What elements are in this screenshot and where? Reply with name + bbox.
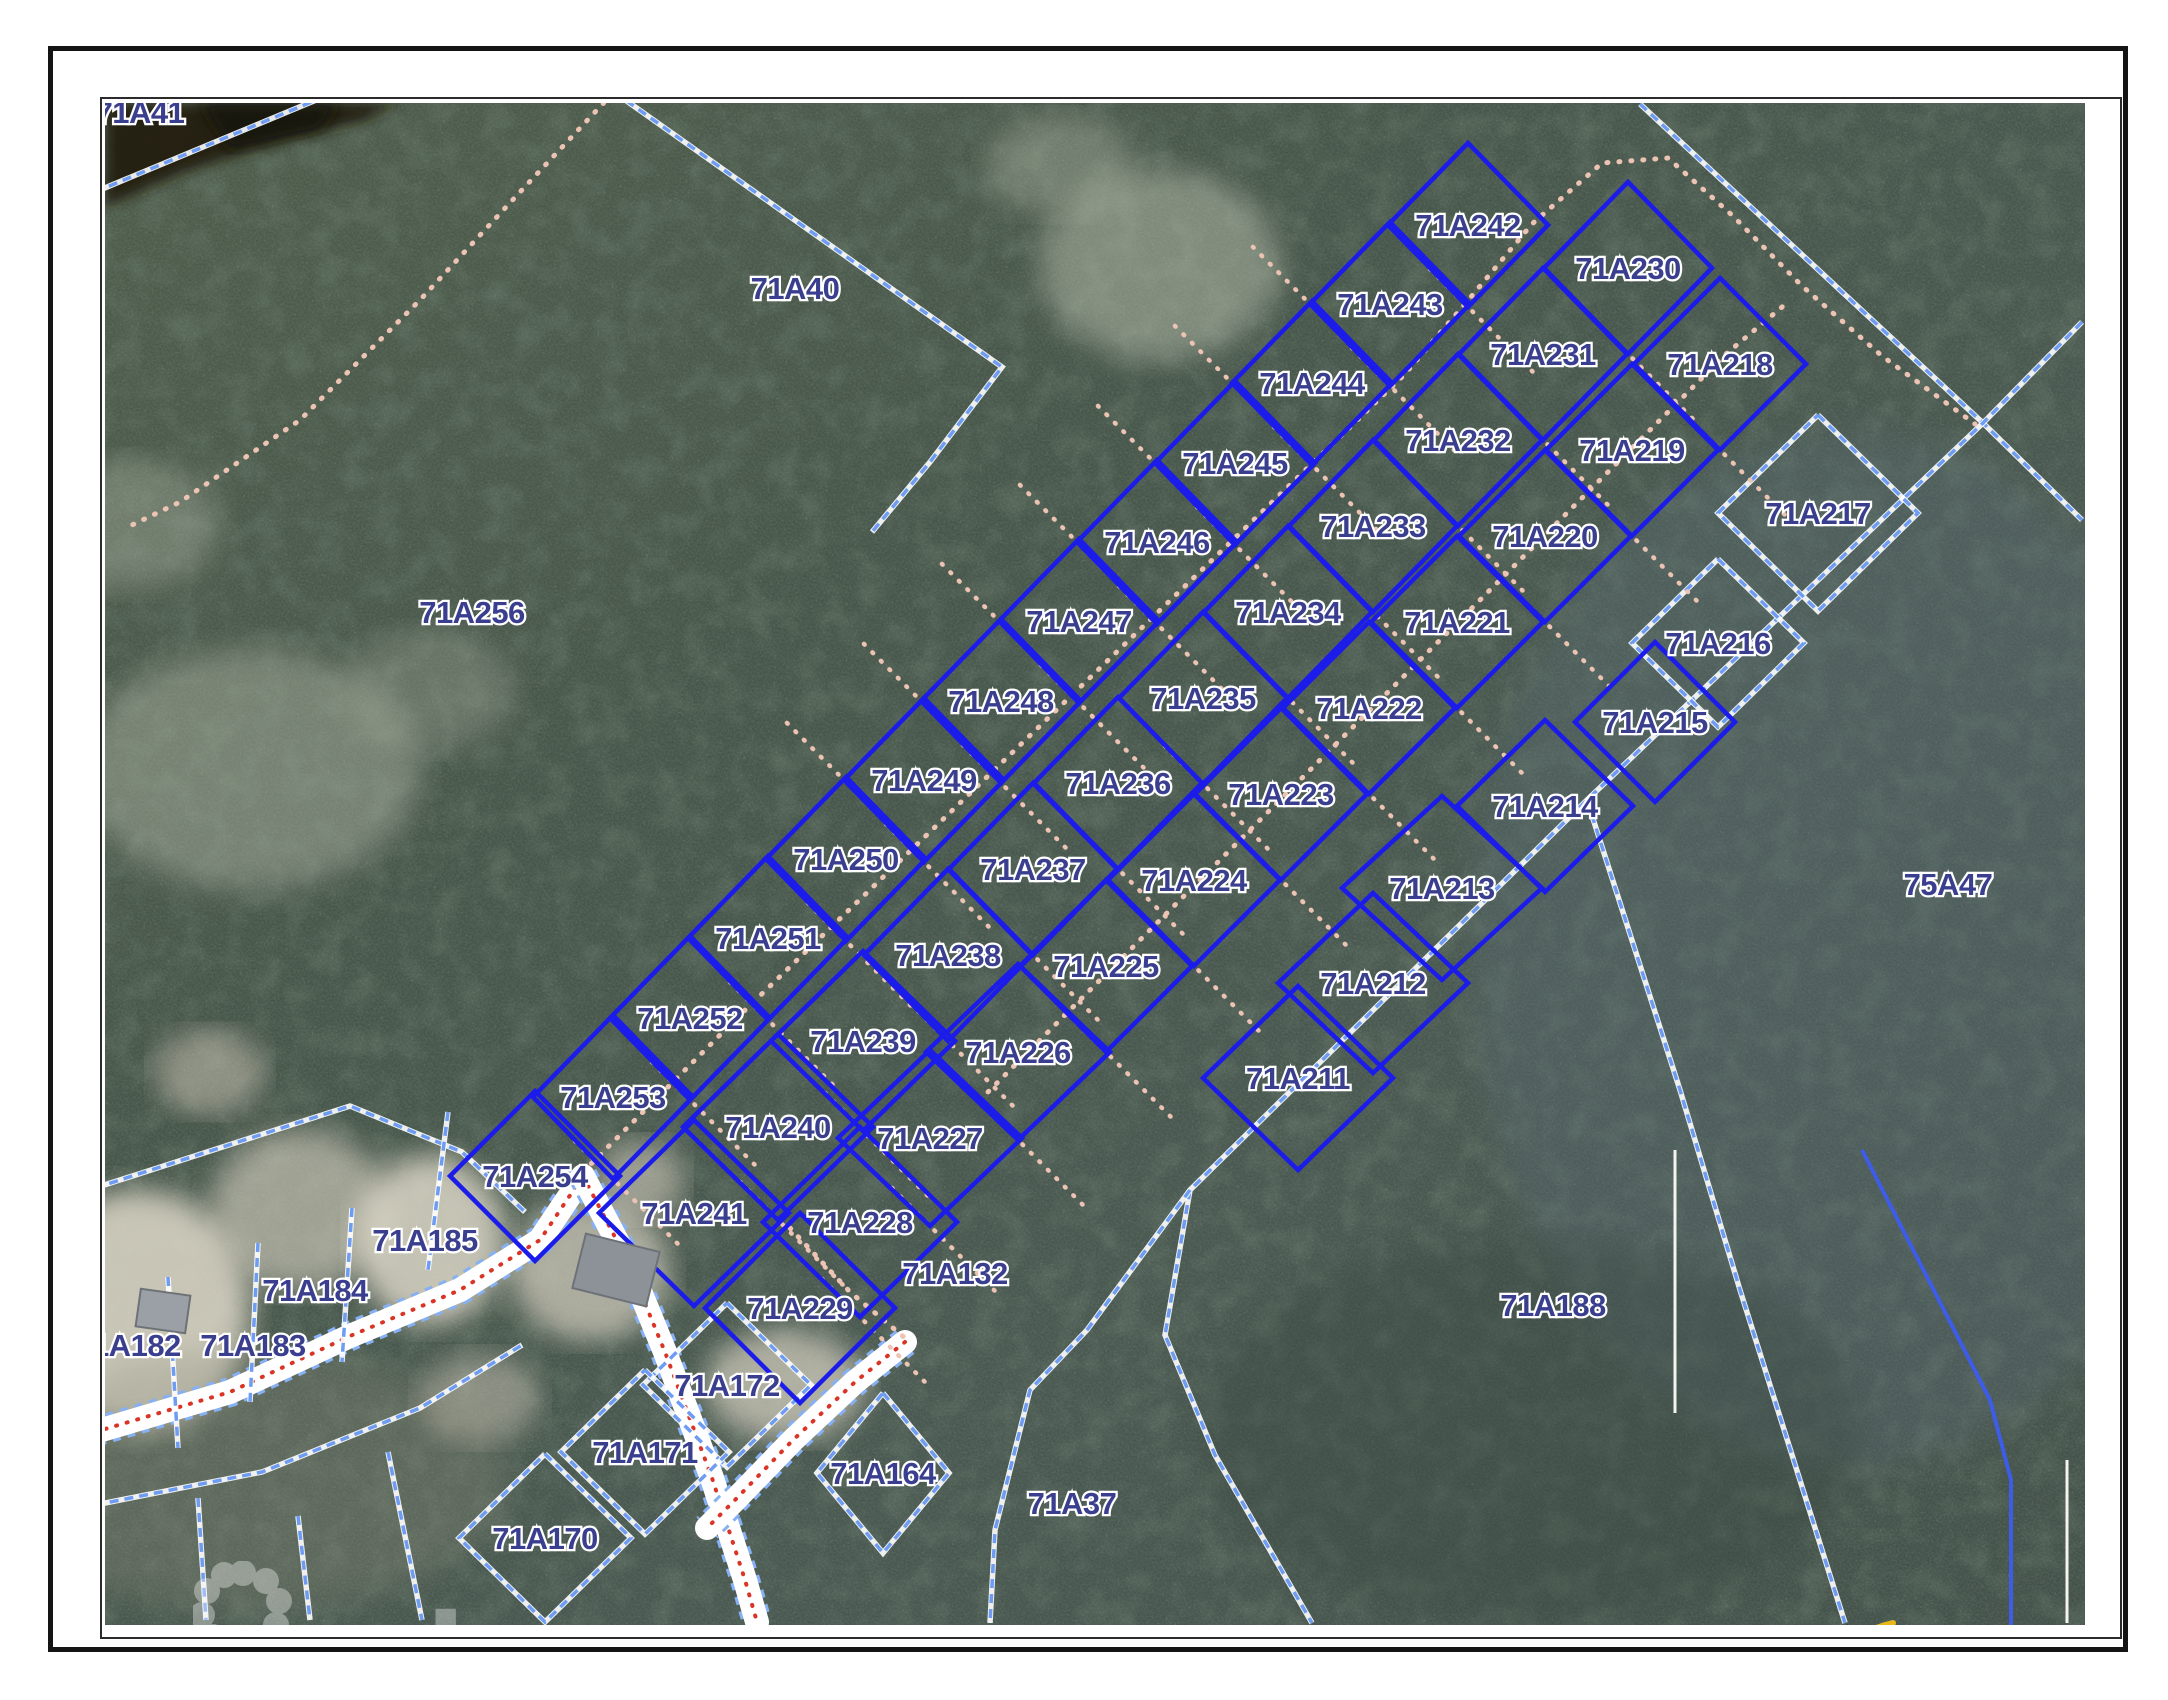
parcel-label-71A41: 71A41 (105, 103, 185, 130)
parcel-label-71A234: 71A234 (1235, 595, 1342, 630)
terrain-patch (985, 115, 1135, 215)
parcel-label-71A250: 71A250 (793, 842, 899, 877)
parcel-label-71A231: 71A231 (1490, 337, 1596, 372)
parcel-label-71A212: 71A212 (1320, 966, 1426, 1001)
parcel-label-71A232: 71A232 (1405, 423, 1511, 458)
parcel-label-71A247: 71A247 (1026, 604, 1132, 639)
parcel-label-71A37: 71A37 (1028, 1486, 1117, 1521)
parcel-label-71A219: 71A219 (1579, 433, 1685, 468)
parcel-label-71A170: 71A170 (492, 1521, 598, 1556)
parcel-label-71A246: 71A246 (1104, 525, 1210, 560)
parcel-label-71A230: 71A230 (1575, 251, 1681, 286)
parcel-label-71A171: 71A171 (592, 1435, 698, 1470)
aerial-map[interactable]: 71A24271A24371A24471A24571A24671A24771A2… (105, 103, 2085, 1625)
parcel-label-71A164: 71A164 (830, 1456, 937, 1491)
parcel-label-71A227: 71A227 (877, 1121, 983, 1156)
parcel-label-71A242: 71A242 (1415, 208, 1521, 243)
parcel-label-71A132: 71A132 (902, 1256, 1008, 1291)
parcel-label-71A252: 71A252 (637, 1001, 743, 1036)
parcel-label-71A244: 71A244 (1259, 366, 1366, 401)
parcel-label-71A233: 71A233 (1320, 509, 1426, 544)
parcel-label-71A237: 71A237 (980, 852, 1086, 887)
parcel-label-71A249: 71A249 (871, 763, 977, 798)
parcel-label-71A226: 71A226 (965, 1035, 1071, 1070)
parcel-label-71A211: 71A211 (1246, 1061, 1350, 1096)
parcel-label-71A236: 71A236 (1065, 766, 1171, 801)
parcel-label-71A254: 71A254 (482, 1159, 589, 1194)
parcel-label-71A185: 71A185 (372, 1223, 478, 1258)
map-canvas: 71A24271A24371A24471A24571A24671A24771A2… (105, 103, 2085, 1625)
parcel-label-71A248: 71A248 (948, 684, 1054, 719)
cayman-land-info-logo[interactable]: CAYMAN LAND INFO www.caymanlandinfo.ky (1817, 1615, 2085, 1625)
parcel-label-71A228: 71A228 (807, 1205, 913, 1240)
parcel-label-71A224: 71A224 (1141, 863, 1248, 898)
parcel-label-71A217: 71A217 (1765, 496, 1871, 531)
parcel-label-71A213: 71A213 (1389, 871, 1495, 906)
parcel-label-71A239: 71A239 (810, 1024, 916, 1059)
parcel-label-71A225: 71A225 (1053, 949, 1159, 984)
parcel-label-71A223: 71A223 (1228, 777, 1334, 812)
parcel-label-71A183: 71A183 (200, 1328, 306, 1363)
map-page: 71A24271A24371A24471A24571A24671A24771A2… (0, 0, 2168, 1700)
parcel-label-71A214: 71A214 (1492, 789, 1599, 824)
parcel-label-71A184: 71A184 (262, 1273, 369, 1308)
parcel-label-71A243: 71A243 (1337, 287, 1443, 322)
parcel-label-75A47: 75A47 (1904, 867, 1993, 902)
parcel-label-71A229: 71A229 (747, 1291, 853, 1326)
parcel-label-71A40: 71A40 (751, 271, 840, 306)
parcel-label-71A241: 71A241 (641, 1196, 747, 1231)
parcel-label-71A220: 71A220 (1492, 519, 1598, 554)
parcel-label-71A222: 71A222 (1316, 691, 1422, 726)
parcel-label-71A221: 71A221 (1404, 605, 1510, 640)
parcel-label-71A216: 71A216 (1665, 626, 1771, 661)
terrain-patch (155, 1030, 265, 1114)
parcel-label-71A253: 71A253 (560, 1080, 666, 1115)
parcel-label-71A245: 71A245 (1182, 446, 1288, 481)
parcel-label-71A251: 71A251 (715, 921, 821, 956)
parcel-label-71A188: 71A188 (1500, 1288, 1606, 1323)
parcel-label-71A256: 71A256 (419, 595, 525, 630)
parcel-label-71A238: 71A238 (895, 938, 1001, 973)
terrain-patch (345, 630, 515, 750)
parcel-label-71A218: 71A218 (1667, 347, 1773, 382)
parcel-label-71A172: 71A172 (674, 1368, 780, 1403)
parcel-label-71A215: 71A215 (1602, 705, 1708, 740)
parcel-label-71A182: 71A182 (105, 1328, 181, 1363)
building (136, 1289, 191, 1334)
parcel-label-71A240: 71A240 (725, 1110, 831, 1145)
globe-icon (1817, 1615, 1927, 1625)
parcel-label-71A235: 71A235 (1150, 681, 1256, 716)
